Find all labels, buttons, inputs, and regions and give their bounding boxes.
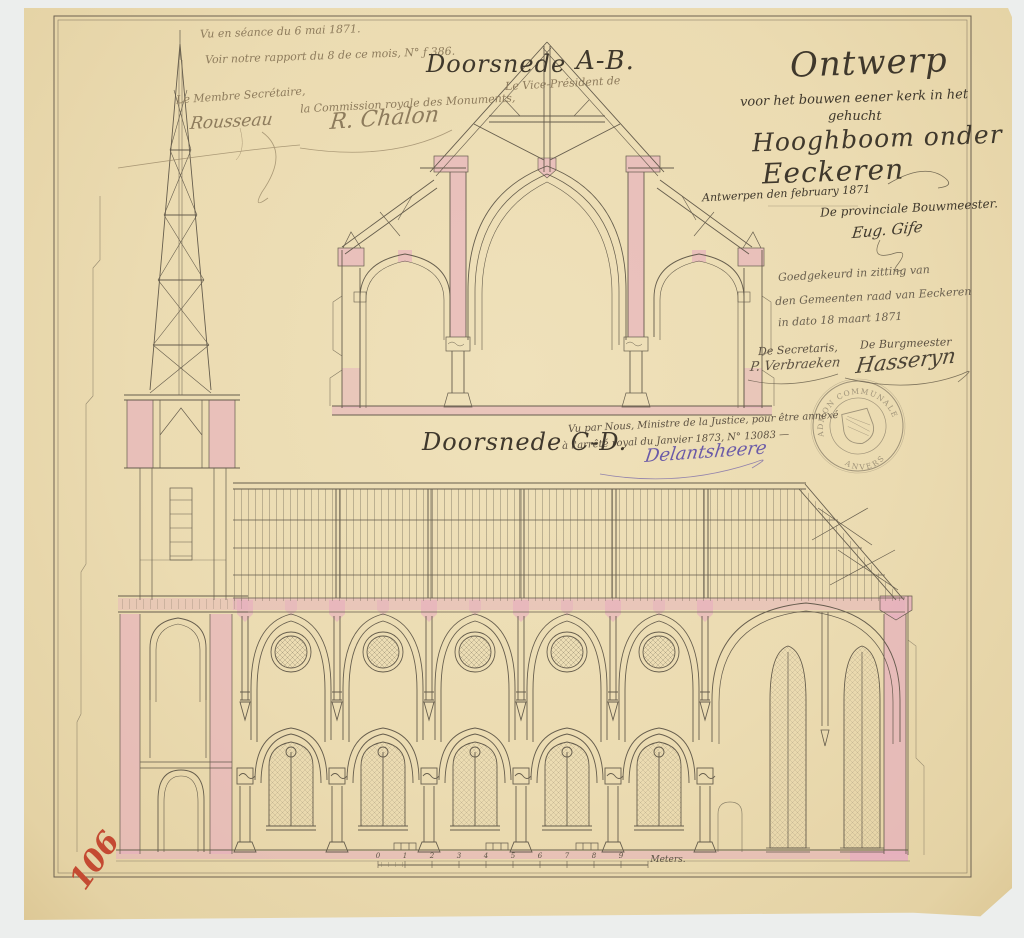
scale-number: 9 [619,852,624,860]
svg-text:ADMON COMMUNALE D'EECKEREN: ADMON COMMUNALE D'EECKEREN [807,378,901,442]
scanned-architectural-drawing: { "colors": { "paper": "#ebdbb1", "ink":… [0,0,1024,938]
scale-number: 2 [429,852,435,860]
scale-bar [378,861,648,868]
stamp-text-top: ADMON COMMUNALE D'EECKEREN [807,378,901,442]
municipal-seal-stamp: ADMON COMMUNALE D'EECKEREN ANVERS [801,369,915,483]
scale-unit-label: Meters. [649,855,685,865]
scale-number: 8 [592,852,597,860]
section-ab-letters: A-B. [576,48,635,74]
section-cd-label: Doorsnede C-D. [422,430,627,454]
title-line3: gehucht [828,110,882,123]
scale-number: 6 [538,852,543,860]
title-ontwerp: Ontwerp [789,43,948,82]
scale-number: 7 [565,852,570,860]
member-secretary-signature: Rousseau [189,112,274,133]
scale-number: 1 [403,852,407,860]
scale-number: 4 [483,852,488,860]
scale-number: 5 [511,852,516,860]
scale-number: 3 [457,852,462,860]
section-cd-drawing [116,483,924,861]
section-ab-label: Doorsnede [426,52,566,76]
scale-number: 0 [376,852,381,860]
